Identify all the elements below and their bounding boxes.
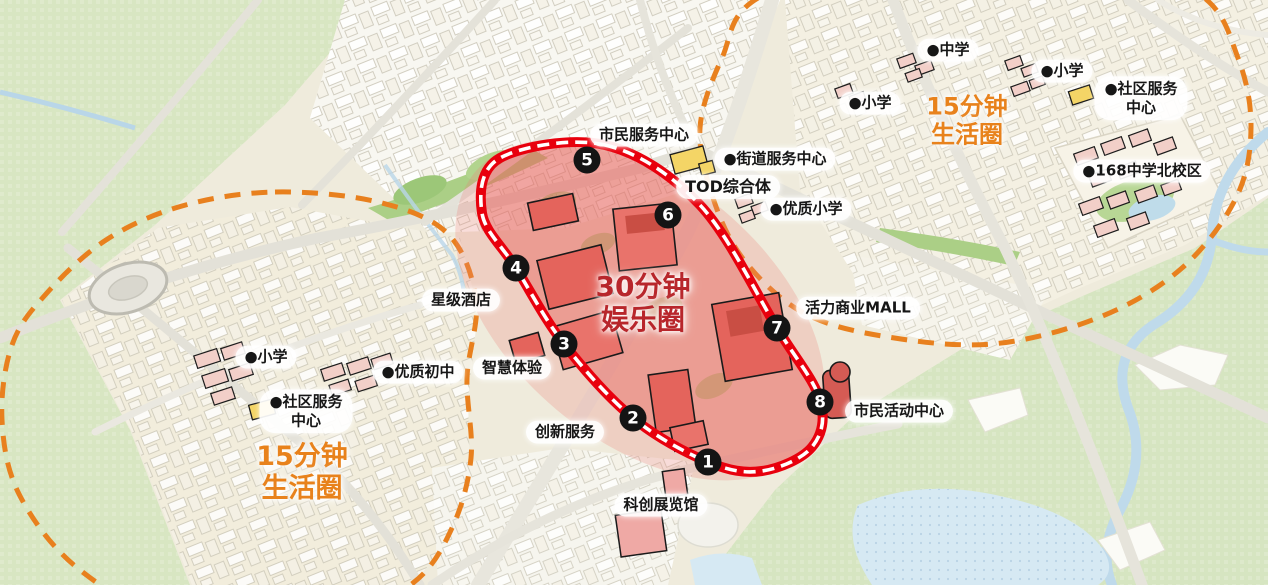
label-innovation-service: 创新服务 [526,421,604,444]
label-school-168: ●168中学北校区 [1073,160,1210,183]
label-quality-junior: ●优质初中 [372,361,463,384]
label-mall: 活力商业MALL [796,297,920,320]
life-circle-left-title: 15分钟生活圈 [256,441,348,505]
route-marker-3: 3 [551,331,578,358]
route-marker-8: 8 [807,389,834,416]
route-marker-7: 7 [764,315,791,342]
label-civic-activity-center: 市民活动中心 [845,400,953,423]
route-marker-5: 5 [574,147,601,174]
label-primary-mid: ●小学 [839,92,900,115]
route-marker-1: 1 [695,449,722,476]
entertainment-zone-title: 30分钟娱乐圈 [596,270,691,336]
label-community-center-left: ●社区服务中心 [259,389,352,433]
label-middle-school: ●中学 [917,39,978,62]
label-star-hotel: 星级酒店 [422,289,500,312]
label-civic-service-center: 市民服务中心 [590,124,698,147]
label-primary-right: ●小学 [1031,60,1092,83]
route-marker-2: 2 [620,405,647,432]
label-expo-hall: 科创展览馆 [614,494,707,517]
label-community-center-right: ●社区服务中心 [1094,76,1187,120]
label-smart-experience: 智慧体验 [473,357,551,380]
label-quality-primary: ●优质小学 [760,198,851,221]
life-circle-right-title: 15分钟生活圈 [926,93,1007,150]
label-primary-left: ●小学 [235,346,296,369]
route-marker-6: 6 [655,202,682,229]
pond-south [690,553,762,585]
label-street-service-center: ●街道服务中心 [714,148,835,171]
planning-map: 市民服务中心 ●街道服务中心 TOD综合体 ●优质小学 ●中学 ●小学 ●小学 … [0,0,1268,585]
route-marker-4: 4 [503,255,530,282]
label-tod-complex: TOD综合体 [676,175,780,199]
